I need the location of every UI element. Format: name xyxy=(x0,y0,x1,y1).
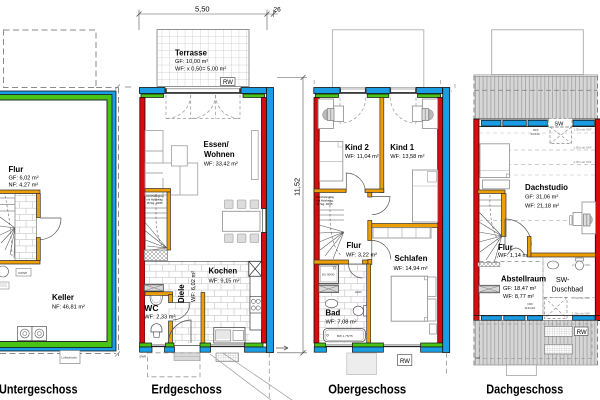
svg-text:WF: 3,22 m²: WF: 3,22 m² xyxy=(346,253,377,259)
svg-text:NF: 4,27 m²: NF: 4,27 m² xyxy=(9,183,39,189)
svg-text:Lüftschacht: Lüftschacht xyxy=(62,356,78,360)
svg-text:5,50: 5,50 xyxy=(195,5,210,14)
svg-text:Kind 2: Kind 2 xyxy=(345,143,369,152)
svg-text:WF: 6,02 m²: WF: 6,02 m² xyxy=(191,271,197,302)
svg-text:Dachstudio: Dachstudio xyxy=(525,183,568,192)
svg-text:1,35m ab OKF: 1,35m ab OKF xyxy=(572,312,590,316)
svg-text:HHR: HHR xyxy=(355,290,362,294)
svg-text:UWNP: UWNP xyxy=(18,271,27,275)
svg-text:WF: 21,18 m²: WF: 21,18 m² xyxy=(525,204,559,210)
svg-text:RW: RW xyxy=(400,359,410,365)
svg-text:Obergeschoss: Obergeschoss xyxy=(328,382,406,397)
svg-text:26: 26 xyxy=(274,7,282,14)
svg-text:Flur: Flur xyxy=(9,165,24,174)
svg-text:Essen/: Essen/ xyxy=(204,140,230,149)
svg-text:Diele: Diele xyxy=(177,284,186,303)
svg-text:1,50m ab OKF: 1,50m ab OKF xyxy=(572,296,590,300)
svg-text:Durchsteigung: Durchsteigung xyxy=(147,194,165,198)
svg-text:NF: 46,81 m²: NF: 46,81 m² xyxy=(52,305,85,311)
svg-text:Kochen: Kochen xyxy=(209,267,238,276)
svg-text:GF: 10,00 m²: GF: 10,00 m² xyxy=(175,59,208,65)
svg-text:Bad: Bad xyxy=(326,309,341,318)
svg-text:mit Holzbelag: mit Holzbelag xyxy=(317,199,334,203)
svg-text:WF: x 0,50= 5,00 m²: WF: x 0,50= 5,00 m² xyxy=(175,67,226,73)
svg-text:Terrasse: Terrasse xyxy=(175,49,208,58)
svg-text:Abstellraum: Abstellraum xyxy=(501,275,546,284)
svg-text:Erdgeschoss: Erdgeschoss xyxy=(151,382,222,397)
svg-text:WF: 7,08 m²: WF: 7,08 m² xyxy=(326,320,357,326)
svg-text:WF: 13,58 m²: WF: 13,58 m² xyxy=(390,154,424,160)
svg-text:RW: RW xyxy=(577,330,587,336)
svg-text:Kind 1: Kind 1 xyxy=(390,143,414,152)
svg-text:RW: RW xyxy=(223,80,233,86)
svg-text:Schlafen: Schlafen xyxy=(395,254,428,263)
svg-text:WF: 8,77 m²: WF: 8,77 m² xyxy=(503,294,534,300)
svg-text:Keller: Keller xyxy=(52,293,74,302)
svg-text:BW 1,75/75: BW 1,75/75 xyxy=(337,334,353,338)
svg-text:Untergeschoss: Untergeschoss xyxy=(0,382,78,397)
svg-text:114/140: 114/140 xyxy=(525,306,536,310)
svg-text:Wohnen: Wohnen xyxy=(204,150,235,159)
svg-text:WF: 33,42 m²: WF: 33,42 m² xyxy=(204,162,238,168)
svg-text:Durchsteigung: Durchsteigung xyxy=(317,195,335,199)
svg-text:2,30m ab OKF: 2,30m ab OKF xyxy=(574,160,592,164)
svg-text:GF: 31,06 m²: GF: 31,06 m² xyxy=(525,195,558,201)
svg-text:WF: 11,04 m²: WF: 11,04 m² xyxy=(345,154,379,160)
svg-text:Flur: Flur xyxy=(347,241,362,250)
svg-text:Dachgeschoss: Dachgeschoss xyxy=(486,382,563,397)
svg-text:Duschbad: Duschbad xyxy=(552,287,584,294)
svg-text:WF: 9,15 m²: WF: 9,15 m² xyxy=(209,279,240,285)
svg-text:SW: SW xyxy=(555,121,565,127)
svg-text:18 Stg. 18/25: 18 Stg. 18/25 xyxy=(147,201,163,205)
svg-text:1,35m ab OKF: 1,35m ab OKF xyxy=(574,128,592,132)
svg-text:ØHR: ØHR xyxy=(140,355,148,359)
svg-text:18 Stg. 18/25: 18 Stg. 18/25 xyxy=(317,202,333,206)
svg-text:mit Holzbelag: mit Holzbelag xyxy=(147,198,164,202)
svg-text:GF: 18,47 m²: GF: 18,47 m² xyxy=(503,286,536,292)
svg-text:WF: 14,94 m²: WF: 14,94 m² xyxy=(394,266,428,272)
svg-text:DU 90/90: DU 90/90 xyxy=(322,273,335,277)
svg-text:WC: WC xyxy=(144,303,158,313)
svg-text:1,50m ab OKF: 1,50m ab OKF xyxy=(574,146,592,150)
svg-text:WF: 2,33 m²: WF: 2,33 m² xyxy=(144,315,175,321)
svg-text:GF: 6,02 m²: GF: 6,02 m² xyxy=(9,176,39,182)
svg-text:11,52: 11,52 xyxy=(293,178,302,196)
svg-text:94/140: 94/140 xyxy=(531,132,541,136)
svg-text:SW-: SW- xyxy=(556,277,570,284)
